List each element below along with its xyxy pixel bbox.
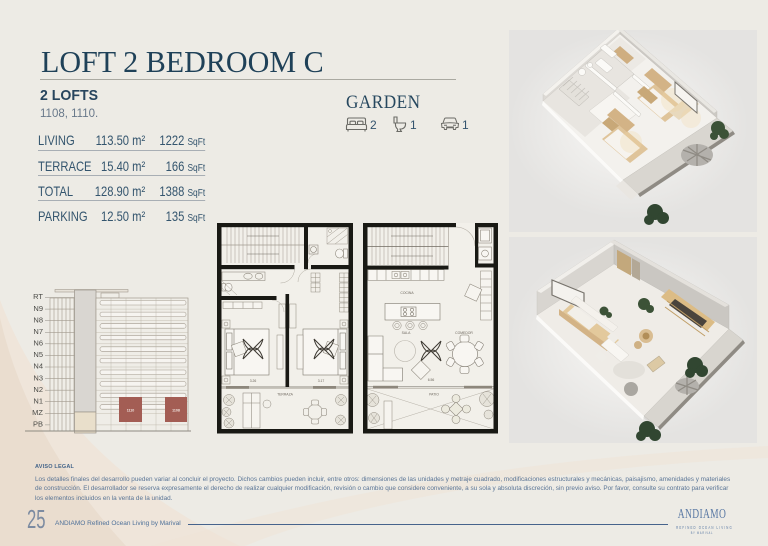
- svg-text:N7: N7: [33, 327, 43, 336]
- svg-text:PATIO: PATIO: [429, 393, 439, 397]
- svg-text:6.56: 6.56: [428, 378, 435, 382]
- svg-text:1110: 1110: [127, 409, 135, 413]
- svg-text:N6: N6: [33, 339, 43, 348]
- svg-text:TERRAZA: TERRAZA: [277, 393, 294, 397]
- svg-text:COCINA: COCINA: [400, 291, 414, 295]
- svg-text:COMEDOR: COMEDOR: [455, 331, 473, 335]
- svg-text:SALA: SALA: [402, 331, 411, 335]
- svg-text:N9: N9: [33, 304, 43, 313]
- svg-text:N2: N2: [33, 385, 43, 394]
- svg-text:PB: PB: [33, 420, 43, 429]
- svg-text:N5: N5: [33, 350, 43, 359]
- svg-text:MZ: MZ: [32, 408, 43, 417]
- svg-text:N8: N8: [33, 315, 43, 324]
- svg-text:RT: RT: [33, 292, 43, 301]
- svg-text:N1: N1: [33, 396, 43, 405]
- svg-text:1108: 1108: [172, 409, 180, 413]
- svg-text:3.17: 3.17: [318, 379, 325, 383]
- svg-text:N3: N3: [33, 373, 43, 382]
- svg-text:3.26: 3.26: [250, 379, 257, 383]
- svg-text:N4: N4: [33, 362, 43, 371]
